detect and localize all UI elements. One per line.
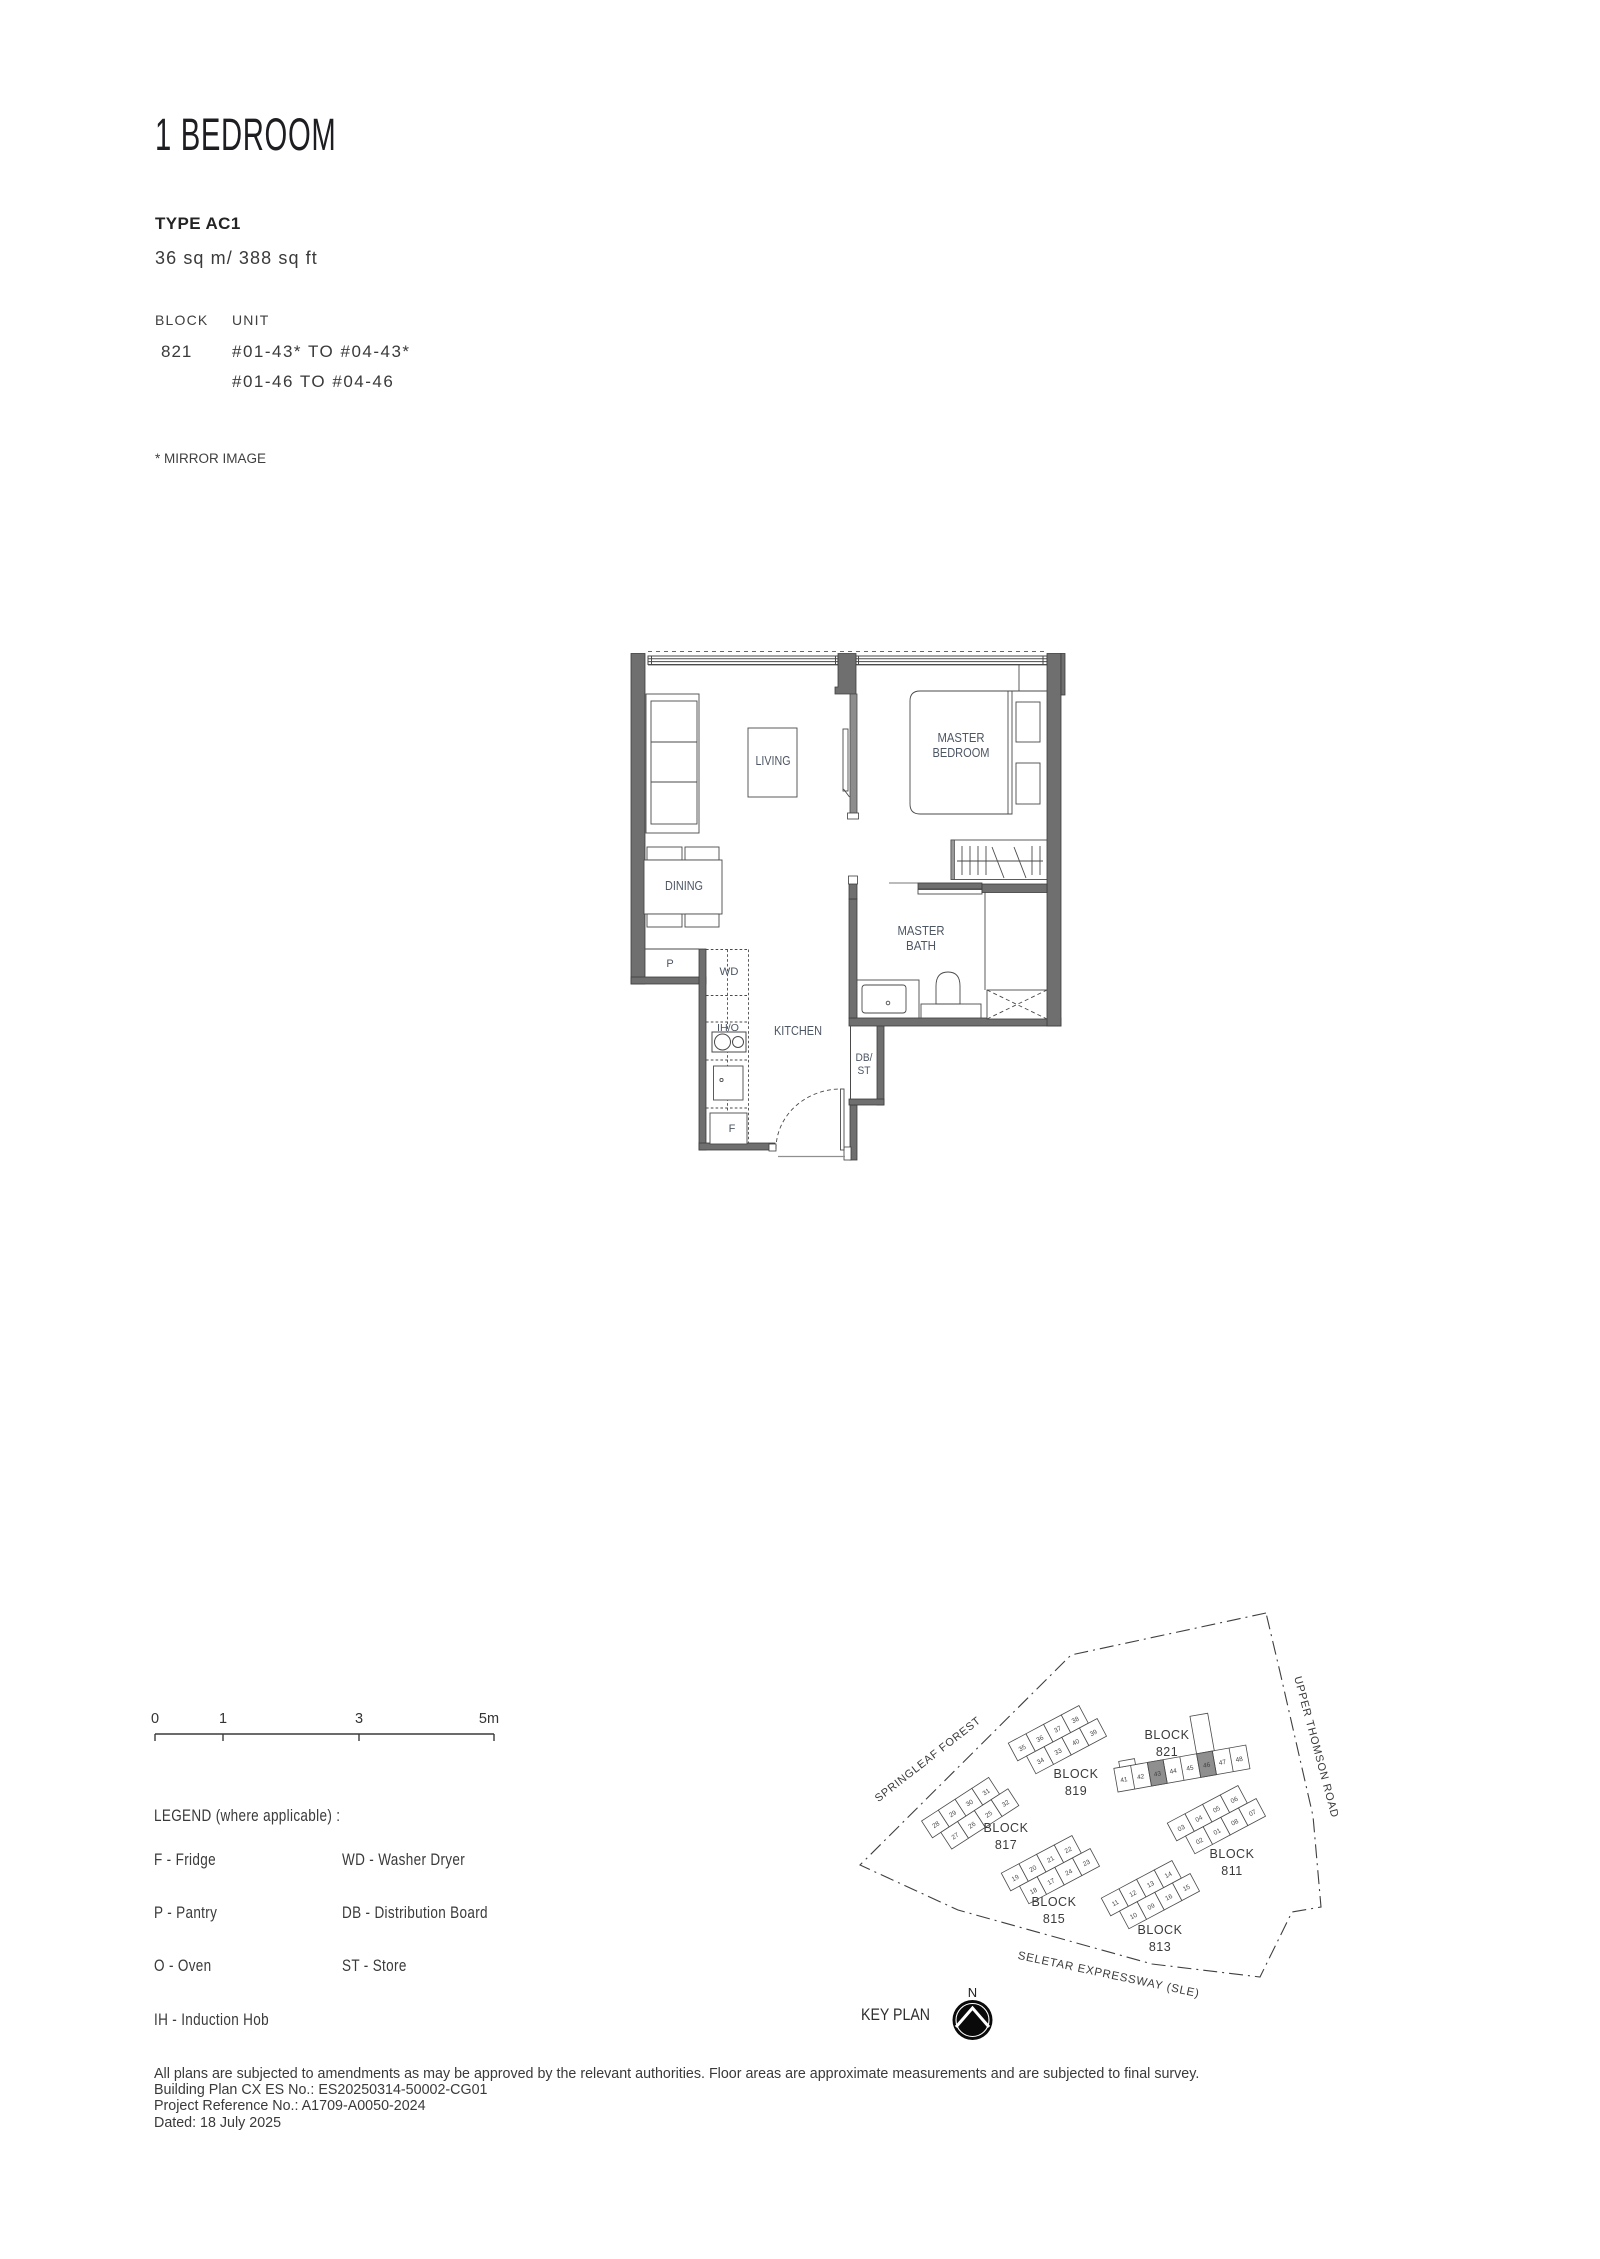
svg-text:BLOCK: BLOCK — [1032, 1895, 1077, 1909]
svg-text:BLOCK: BLOCK — [1210, 1847, 1255, 1861]
svg-text:817: 817 — [995, 1838, 1017, 1852]
svg-text:MASTER: MASTER — [938, 730, 985, 745]
svg-text:5m: 5m — [479, 1711, 499, 1727]
svg-text:N: N — [968, 1985, 977, 2000]
svg-text:821: 821 — [1156, 1745, 1178, 1759]
svg-text:WD: WD — [720, 966, 739, 978]
svg-text:819: 819 — [1065, 1784, 1087, 1798]
svg-text:813: 813 — [1149, 1940, 1171, 1954]
svg-text:BATH: BATH — [906, 938, 936, 953]
svg-text:BEDROOM: BEDROOM — [933, 745, 990, 760]
svg-text:BLOCK: BLOCK — [1054, 1767, 1099, 1781]
svg-text:ST: ST — [858, 1065, 871, 1077]
svg-text:815: 815 — [1043, 1912, 1065, 1926]
svg-text:811: 811 — [1221, 1864, 1242, 1878]
svg-text:DB/: DB/ — [856, 1052, 874, 1064]
svg-text:BLOCK: BLOCK — [1138, 1923, 1183, 1937]
svg-text:DINING: DINING — [665, 878, 703, 893]
svg-text:KEY PLAN: KEY PLAN — [861, 2006, 930, 2024]
svg-text:MASTER: MASTER — [898, 923, 945, 938]
svg-text:UPPER THOMSON ROAD: UPPER THOMSON ROAD — [1291, 1675, 1340, 1819]
svg-text:BLOCK: BLOCK — [984, 1821, 1029, 1835]
svg-text:IH/O: IH/O — [717, 1022, 739, 1034]
svg-text:3: 3 — [355, 1711, 363, 1727]
svg-text:SELETAR EXPRESSWAY (SLE): SELETAR EXPRESSWAY (SLE) — [1017, 1950, 1201, 2000]
svg-text:KITCHEN: KITCHEN — [774, 1023, 822, 1038]
svg-text:LIVING: LIVING — [756, 753, 791, 768]
svg-text:BLOCK: BLOCK — [1145, 1728, 1190, 1742]
svg-text:F: F — [729, 1123, 736, 1135]
svg-text:P: P — [666, 958, 673, 970]
svg-text:1: 1 — [219, 1711, 227, 1727]
svg-text:0: 0 — [151, 1711, 159, 1727]
